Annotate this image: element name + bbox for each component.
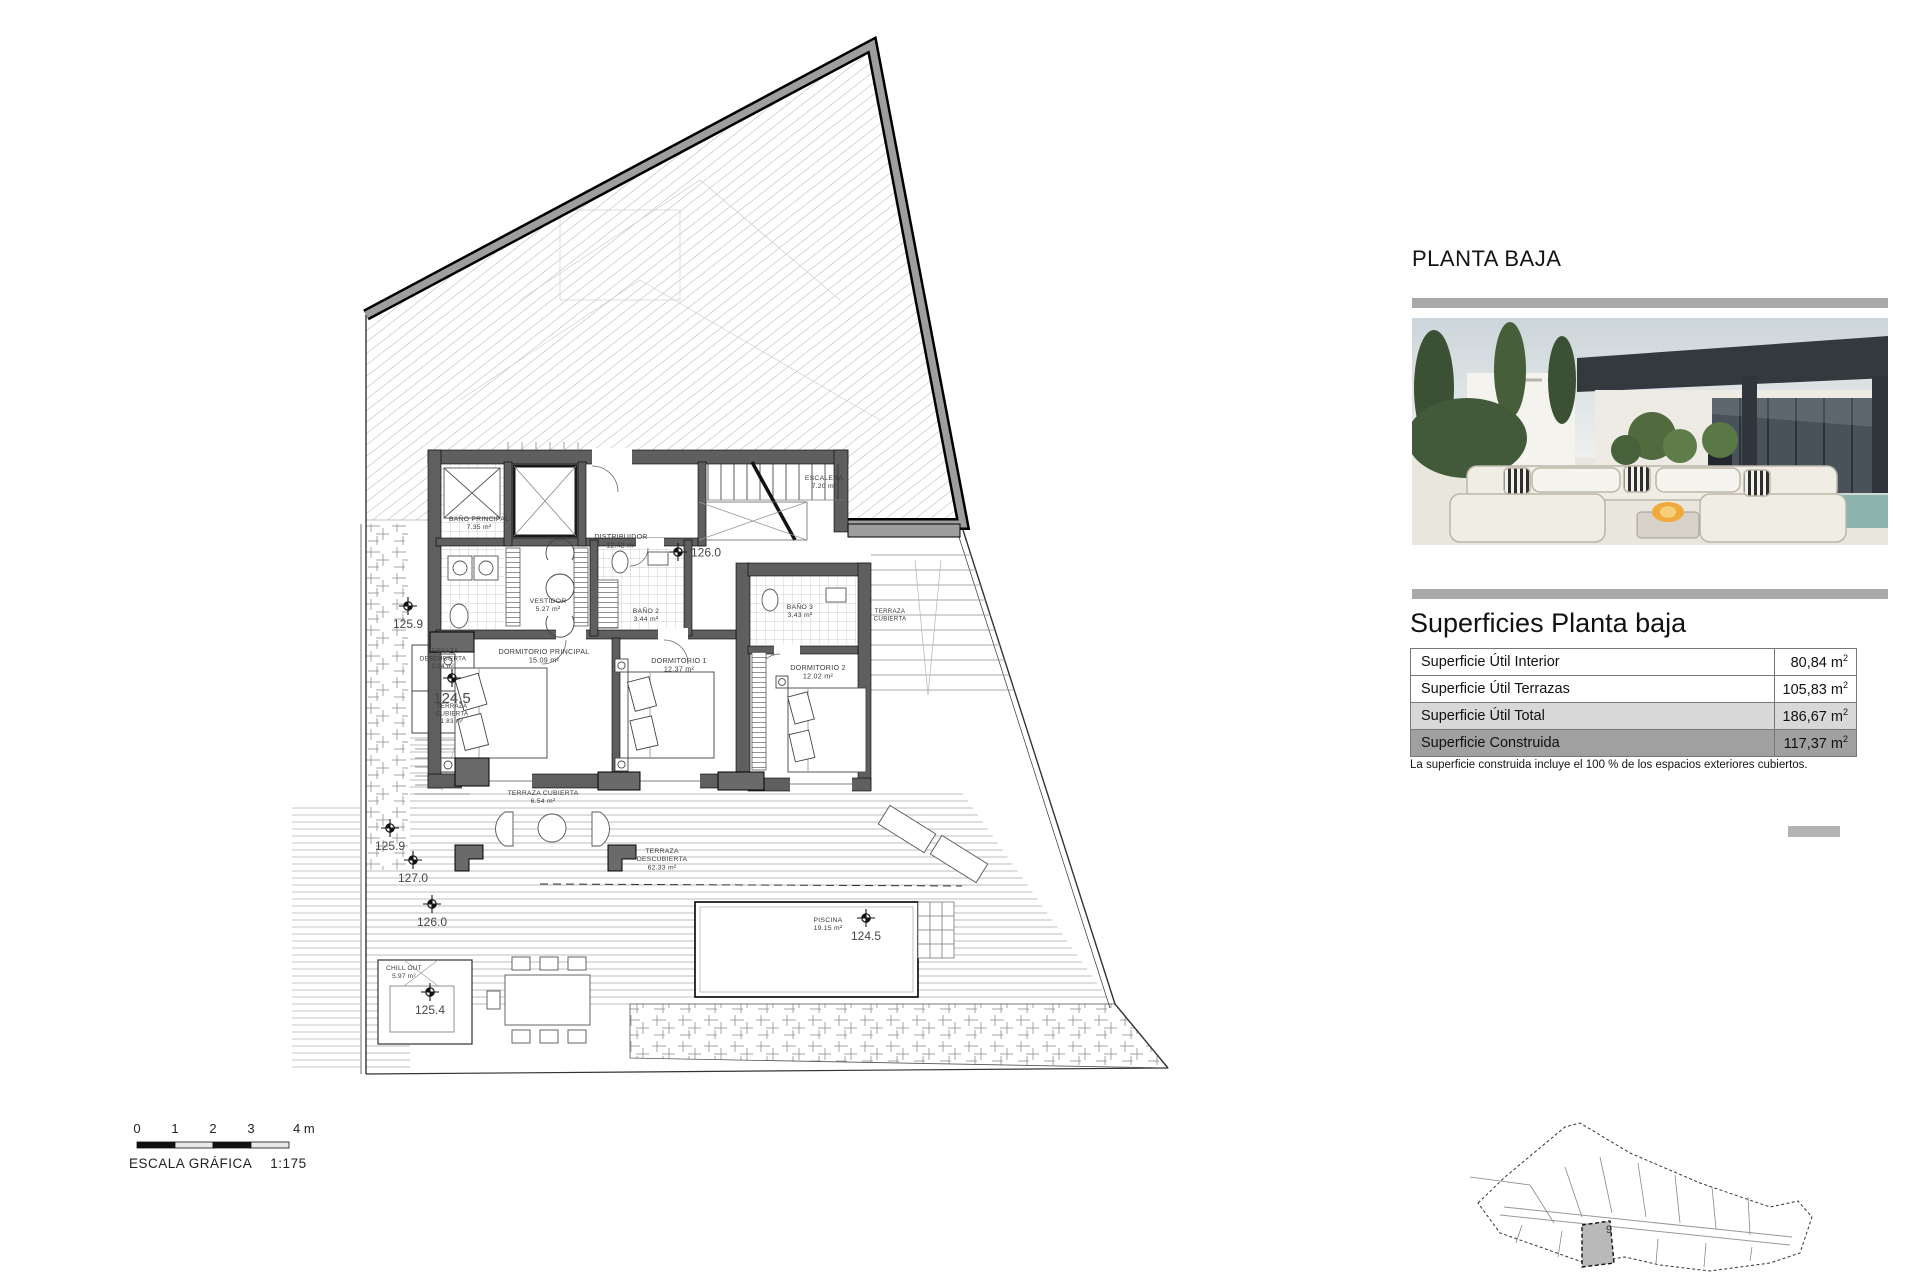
scale-bar: 01234 m (107, 1118, 367, 1188)
table-row: Superficie Útil Total 186,67 m2 (1411, 703, 1857, 730)
room-label: VESTIDOR5.27 m² (530, 598, 567, 613)
svg-text:126.0: 126.0 (691, 546, 721, 560)
svg-text:125.9: 125.9 (375, 839, 405, 853)
surfaces-heading: Superficies Planta baja (1410, 608, 1686, 639)
row-label: Superficie Útil Total (1411, 703, 1775, 730)
row-label: Superficie Útil Interior (1411, 649, 1775, 676)
plan-sheet: BAÑO PRINCIPAL7.35 m²DISTRIBUIDOR12.42 m… (0, 0, 1920, 1280)
room-label: DORMITORIO 212.02 m² (790, 663, 846, 681)
svg-text:124.5: 124.5 (433, 690, 471, 707)
svg-text:127.0: 127.0 (398, 871, 428, 885)
scale-tick: 2 (209, 1121, 216, 1136)
room-label: PISCINA19.15 m² (814, 917, 843, 932)
row-label: Superficie Útil Terrazas (1411, 676, 1775, 703)
surfaces-footnote: La superficie construida incluye el 100 … (1410, 759, 1880, 771)
svg-text:125.9: 125.9 (393, 617, 423, 631)
svg-text:126.0: 126.0 (417, 915, 447, 929)
scale-bar-segments (137, 1142, 289, 1148)
scale-end-label: 4 m (293, 1121, 315, 1136)
villa-photo (1412, 318, 1888, 545)
scale-caption: ESCALA GRÁFICA1:175 (129, 1156, 307, 1171)
room-label: DORMITORIO 112.37 m² (651, 656, 707, 674)
scale-caption-text: ESCALA GRÁFICA (129, 1156, 252, 1171)
row-value: 80,84 m2 (1774, 649, 1857, 676)
table-row: Superficie Construida 117,37 m2 (1411, 730, 1857, 757)
room-label: BAÑO 23.44 m² (633, 606, 659, 623)
shaft (514, 466, 576, 536)
scale-ratio: 1:175 (270, 1156, 306, 1171)
row-value: 105,83 m2 (1774, 676, 1857, 703)
divider-bar-top (1412, 298, 1888, 308)
tiled-strip (363, 524, 408, 870)
room-label: DORMITORIO PRINCIPAL15.09 m² (499, 647, 590, 665)
paved-area (630, 1004, 1168, 1068)
row-value: 117,37 m2 (1774, 730, 1857, 757)
table-row: Superficie Útil Terrazas 105,83 m2 (1411, 676, 1857, 703)
divider-bar-bottom (1412, 589, 1888, 599)
exterior-steps-right (871, 555, 1014, 695)
scale-tick: 1 (171, 1121, 178, 1136)
svg-text:125.4: 125.4 (415, 1003, 445, 1017)
floor-plan-drawing: BAÑO PRINCIPAL7.35 m²DISTRIBUIDOR12.42 m… (0, 0, 1280, 1280)
row-value: 186,67 m2 (1774, 703, 1857, 730)
outside-deck (292, 806, 360, 1072)
page-title: PLANTA BAJA (1412, 246, 1561, 272)
room-label: BAÑO 33.43 m² (787, 602, 813, 619)
room-label: TERRAZACUBIERTA (874, 608, 907, 623)
table-row: Superficie Útil Interior 80,84 m2 (1411, 649, 1857, 676)
scale-tick: 3 (247, 1121, 254, 1136)
surfaces-table: Superficie Útil Interior 80,84 m2 Superf… (1410, 648, 1857, 757)
staircase (699, 462, 845, 540)
mini-divider-bar (1788, 826, 1840, 837)
svg-text:124.5: 124.5 (851, 929, 881, 943)
highlighted-plot-number: 9 (1606, 1224, 1612, 1236)
row-label: Superficie Construida (1411, 730, 1775, 757)
key-site-plan: 9 (1470, 1105, 1830, 1275)
scale-tick-labels: 01234 m (133, 1121, 314, 1136)
scale-tick: 0 (133, 1121, 140, 1136)
